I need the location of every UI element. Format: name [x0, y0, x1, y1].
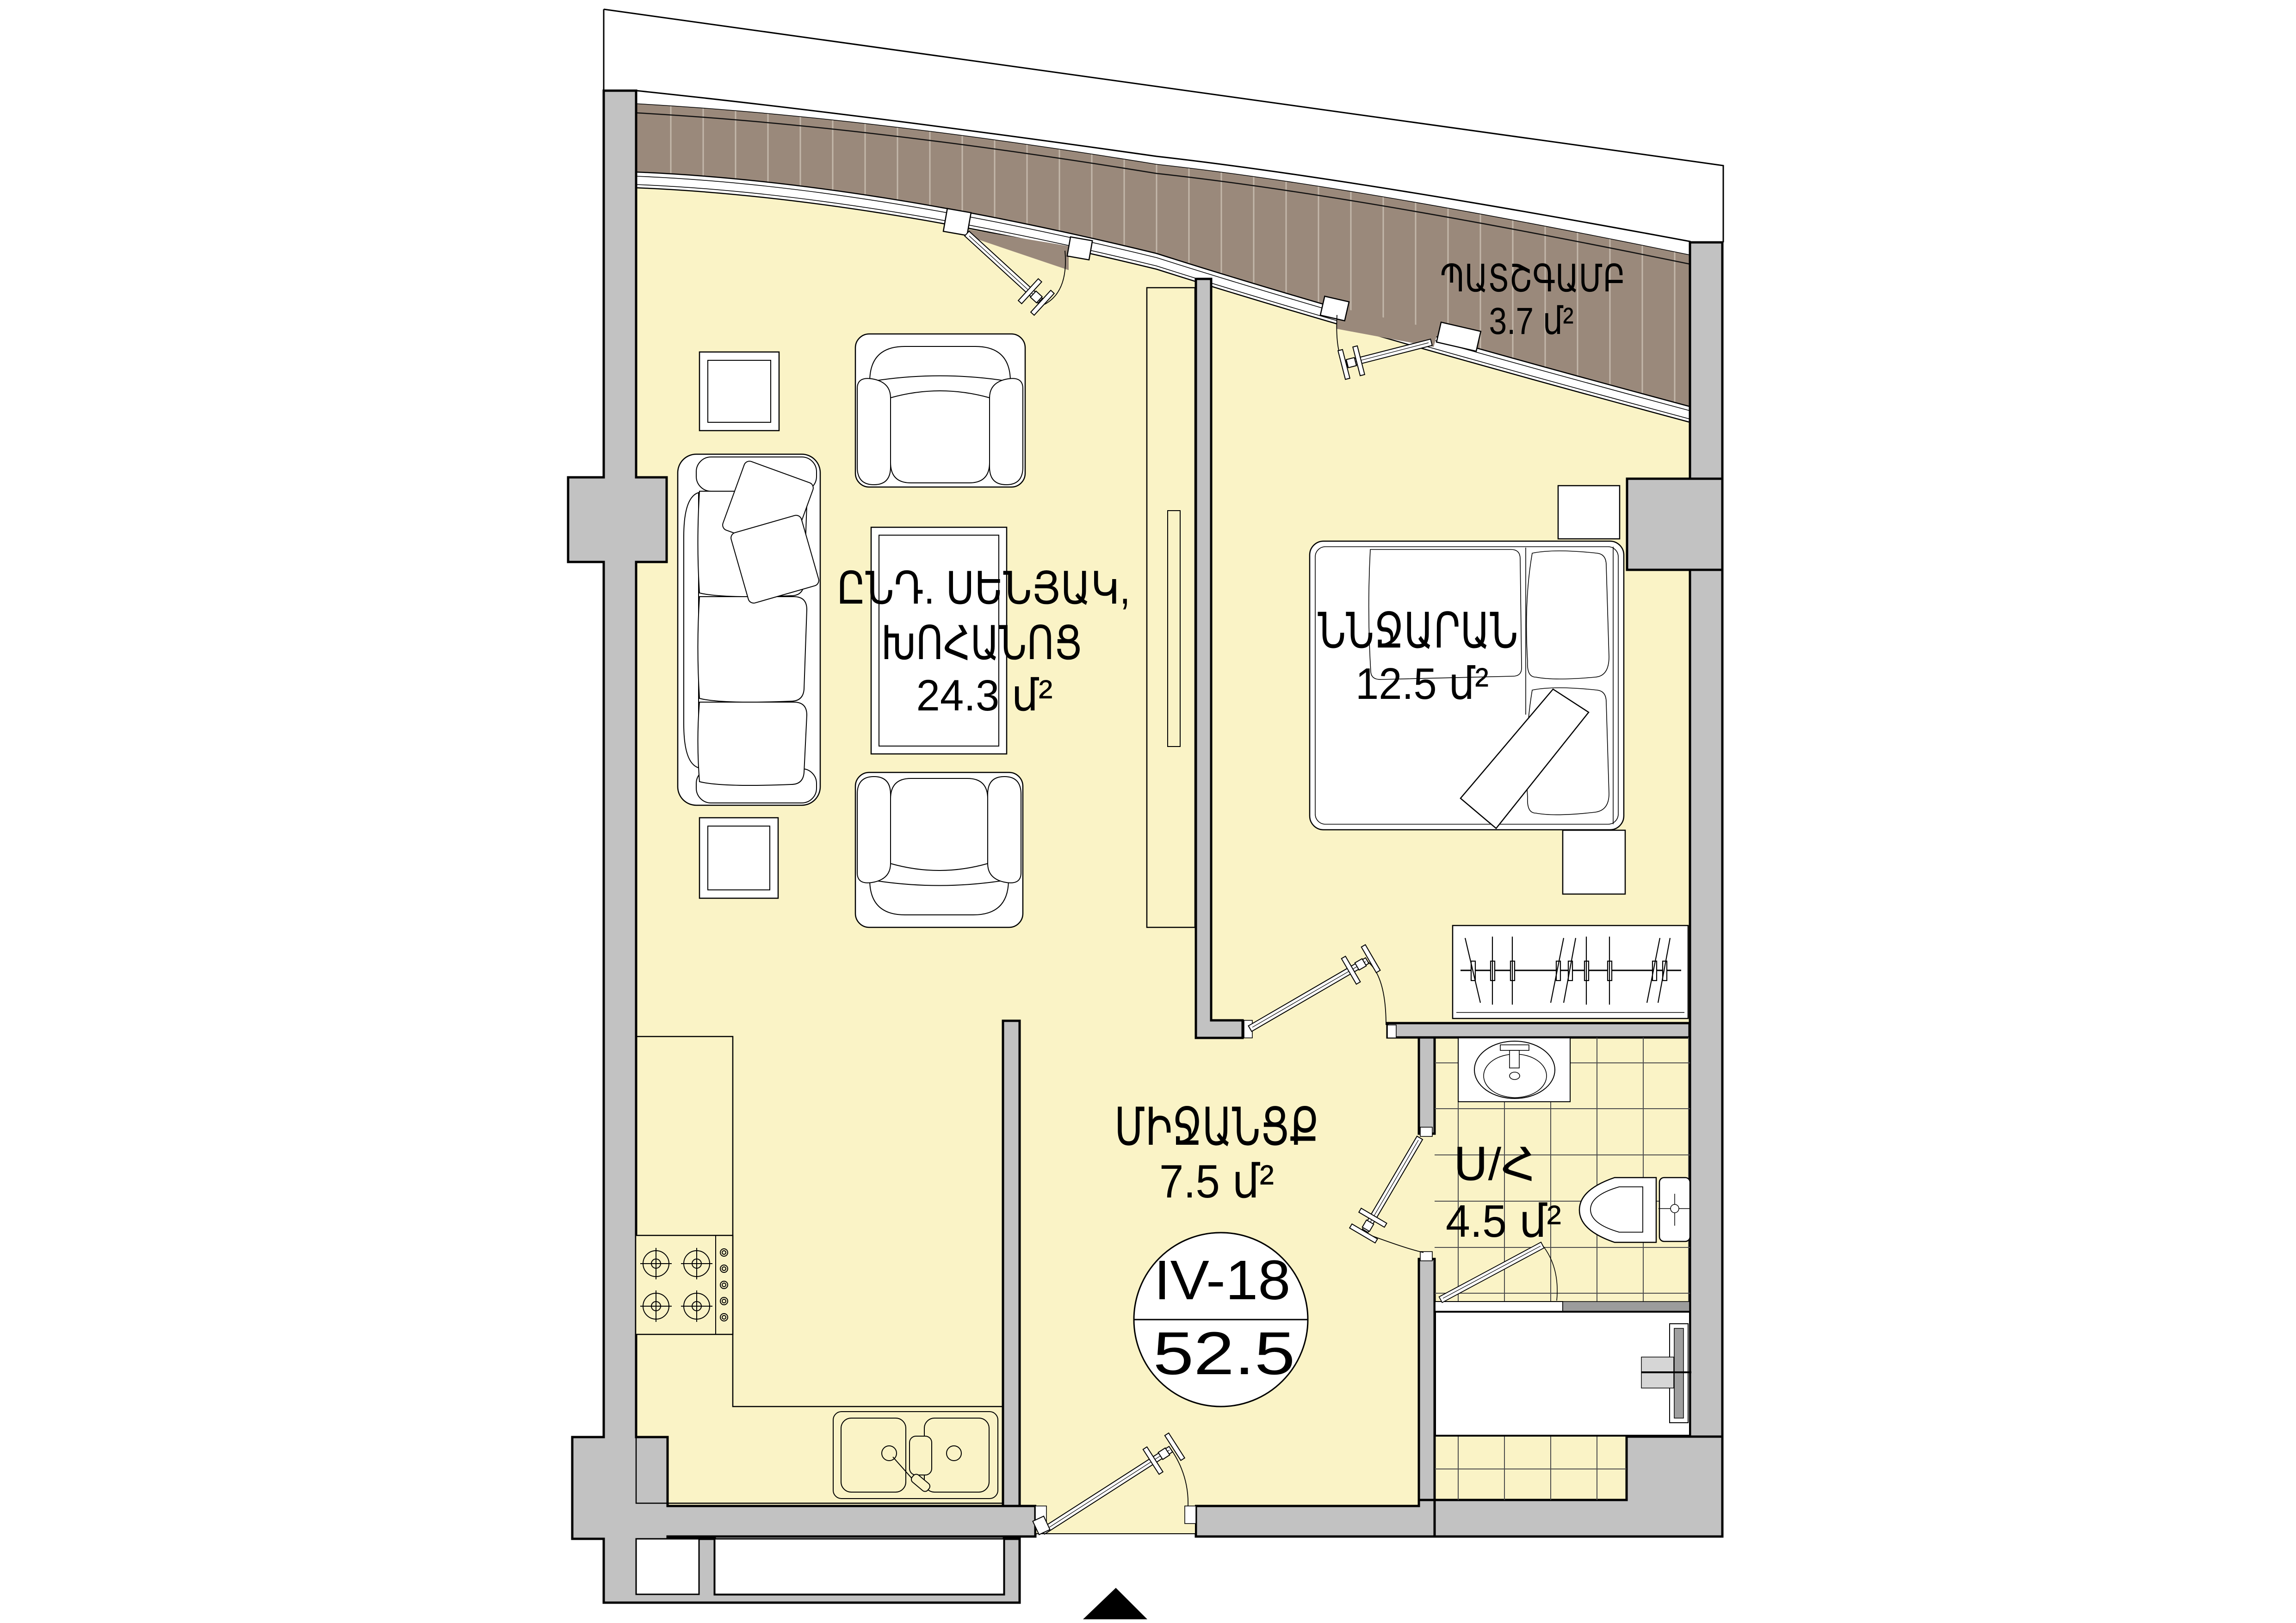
svg-text:3.7 մ²: 3.7 մ² [1489, 300, 1574, 342]
svg-text:12.5 մ²: 12.5 մ² [1355, 659, 1489, 709]
svg-text:ԸՆԴ. ՍԵՆՅԱԿ,: ԸՆԴ. ՍԵՆՅԱԿ, [837, 563, 1131, 613]
svg-text:ՊԱՏՇԳԱՄԲ: ՊԱՏՇԳԱՄԲ [1440, 258, 1625, 300]
svg-text:4.5 մ²: 4.5 մ² [1446, 1196, 1561, 1247]
svg-text:7.5 մ²: 7.5 մ² [1159, 1156, 1274, 1208]
svg-text:ՄԻՋԱՆՑՔ: ՄԻՋԱՆՑՔ [1114, 1098, 1319, 1156]
svg-text:24.3 մ²: 24.3 մ² [916, 671, 1053, 720]
svg-text:52.5: 52.5 [1153, 1319, 1295, 1387]
svg-text:Ս/Հ: Ս/Հ [1454, 1139, 1535, 1190]
svg-text:ՆՆՋԱՐԱՆ: ՆՆՋԱՐԱՆ [1318, 604, 1518, 658]
svg-text:IV-18: IV-18 [1154, 1248, 1291, 1311]
svg-text:ԽՈՀԱՆՈՑ: ԽՈՀԱՆՈՑ [881, 617, 1083, 669]
